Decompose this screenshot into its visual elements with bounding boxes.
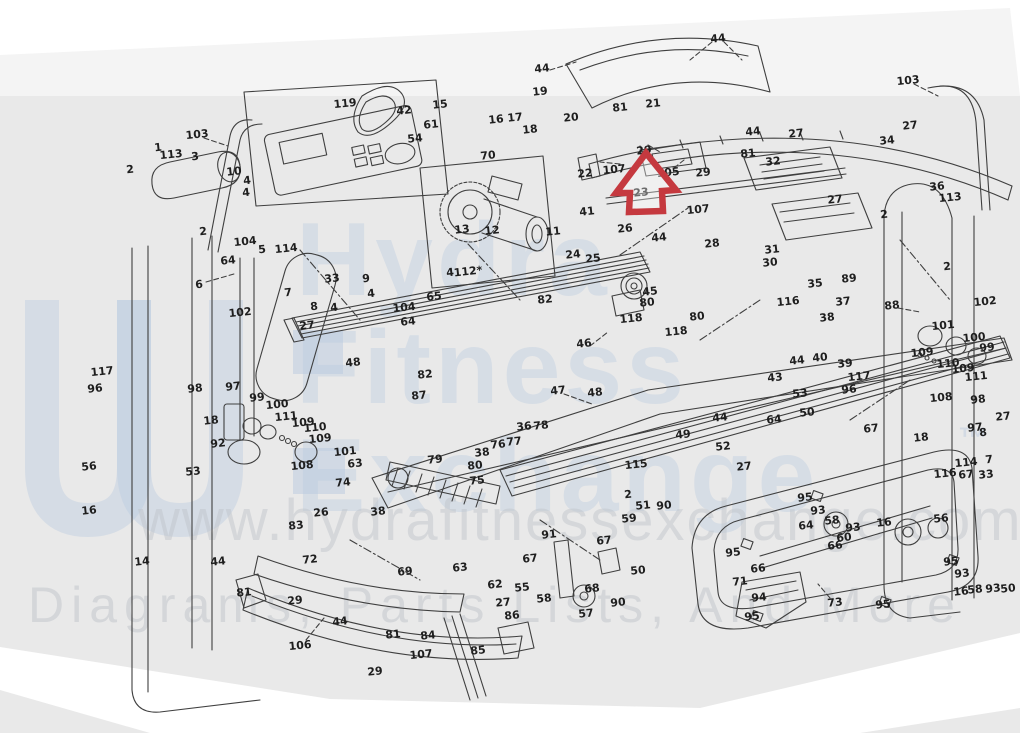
- part-label-61: 61: [423, 117, 440, 132]
- part-label-95: 95: [797, 490, 814, 505]
- part-label-7: 7: [985, 453, 994, 467]
- part-label-9: 9: [362, 272, 371, 286]
- part-label-56: 56: [933, 511, 950, 526]
- part-label-64: 64: [220, 253, 237, 268]
- part-label-64: 64: [400, 314, 417, 329]
- part-label-29: 29: [695, 165, 712, 180]
- part-label-64: 64: [798, 518, 815, 533]
- part-label-70: 70: [480, 148, 497, 163]
- part-label-30: 30: [762, 255, 779, 270]
- part-label-28: 28: [704, 236, 721, 251]
- part-label-80: 80: [689, 309, 706, 324]
- part-label-63: 63: [347, 456, 364, 471]
- part-label-59: 59: [621, 511, 638, 526]
- part-label-18: 18: [522, 122, 539, 137]
- part-label-25: 25: [585, 251, 602, 266]
- paper-sliver-left: [0, 690, 150, 733]
- part-label-8: 8: [979, 426, 988, 440]
- part-label-54: 54: [407, 131, 424, 146]
- part-label-118: 118: [619, 311, 643, 326]
- part-label-27: 27: [902, 118, 919, 133]
- part-label-107: 107: [602, 162, 626, 177]
- part-label-67: 67: [863, 421, 880, 436]
- part-label-48: 48: [587, 385, 604, 400]
- part-label-68: 68: [584, 581, 601, 596]
- part-label-67: 67: [596, 533, 613, 548]
- part-label-20: 20: [563, 110, 580, 125]
- part-label-85: 85: [470, 643, 487, 658]
- part-label-80: 80: [639, 295, 656, 310]
- part-label-101: 101: [931, 318, 955, 333]
- part-label-2: 2: [624, 488, 633, 502]
- part-label-58: 58: [967, 582, 984, 597]
- paper-sliver-right: [860, 708, 1020, 733]
- part-label-99: 99: [249, 390, 266, 405]
- part-label-41: 41: [579, 204, 596, 219]
- part-label-81: 81: [236, 585, 253, 600]
- part-label-52: 52: [715, 439, 732, 454]
- part-label-44: 44: [332, 614, 349, 629]
- part-label-2: 2: [943, 260, 952, 274]
- part-label-98: 98: [970, 392, 987, 407]
- part-label-2: 2: [880, 208, 889, 222]
- part-label-44: 44: [710, 31, 727, 46]
- part-label-44: 44: [712, 410, 729, 425]
- part-label-33: 33: [324, 271, 341, 286]
- part-label-2: 2: [199, 225, 208, 239]
- part-label-97: 97: [225, 379, 242, 394]
- part-label-84: 84: [420, 628, 437, 643]
- part-label-42: 42: [396, 103, 413, 118]
- part-label-81: 81: [740, 146, 757, 161]
- part-label-56: 56: [81, 459, 98, 474]
- part-label-27: 27: [827, 192, 844, 207]
- part-label-75: 75: [469, 473, 486, 488]
- part-label-15: 15: [432, 97, 449, 112]
- part-label-31: 31: [764, 242, 781, 257]
- part-label-27: 27: [299, 318, 316, 333]
- part-label-76: 76: [490, 437, 507, 452]
- part-label-8: 8: [310, 300, 319, 314]
- part-label-16: 16: [81, 503, 98, 518]
- part-label-109: 109: [308, 431, 332, 446]
- part-label-50: 50: [630, 563, 647, 578]
- part-label-99: 99: [979, 340, 996, 355]
- part-label-44: 44: [789, 353, 806, 368]
- part-label-18: 18: [203, 413, 220, 428]
- part-label-44: 44: [534, 61, 551, 76]
- part-label-18: 18: [913, 430, 930, 445]
- part-label-38: 38: [370, 504, 387, 519]
- part-label-88: 88: [884, 298, 901, 313]
- part-label-27: 27: [995, 409, 1012, 424]
- part-label-57: 57: [578, 606, 595, 621]
- part-label-67: 67: [522, 551, 539, 566]
- part-label-81: 81: [612, 100, 629, 115]
- part-label-53: 53: [185, 464, 202, 479]
- part-label-38: 38: [474, 445, 491, 460]
- part-label-5: 5: [258, 243, 267, 257]
- part-label-44: 44: [745, 124, 762, 139]
- part-label-74: 74: [335, 475, 352, 490]
- part-label-13: 13: [454, 222, 471, 237]
- part-label-65: 65: [426, 289, 443, 304]
- part-label-40: 40: [812, 350, 829, 365]
- part-label-77: 77: [506, 434, 523, 449]
- part-label-16: 16: [488, 112, 505, 127]
- part-label-109: 109: [910, 345, 934, 360]
- part-label-103: 103: [185, 127, 209, 142]
- part-label-21: 21: [645, 96, 662, 111]
- part-label-80: 80: [467, 458, 484, 473]
- part-label-107: 107: [686, 202, 710, 217]
- part-label-104: 104: [392, 300, 417, 315]
- part-label-95: 95: [725, 545, 742, 560]
- part-label-111: 111: [964, 369, 988, 384]
- part-label-116: 116: [776, 294, 801, 309]
- part-label-10: 10: [226, 164, 243, 179]
- part-label-82: 82: [537, 292, 554, 307]
- part-label-91: 91: [541, 527, 558, 542]
- part-label-16: 16: [876, 515, 893, 530]
- part-label-34: 34: [879, 133, 896, 148]
- part-label-33: 33: [978, 467, 995, 482]
- part-label-27: 27: [788, 126, 805, 141]
- part-label-24: 24: [565, 247, 582, 262]
- part-label-96: 96: [87, 381, 104, 396]
- part-label-32: 32: [765, 154, 782, 169]
- part-label-43: 43: [767, 370, 784, 385]
- part-label-50: 50: [799, 405, 816, 420]
- part-label-81: 81: [385, 627, 402, 642]
- part-label-44: 44: [651, 230, 668, 245]
- part-label-3: 3: [191, 150, 200, 164]
- part-label-66: 66: [827, 538, 844, 553]
- part-label-89: 89: [841, 271, 858, 286]
- part-label-35: 35: [807, 276, 824, 291]
- part-label-82: 82: [417, 367, 434, 382]
- part-label-64: 64: [766, 412, 783, 427]
- part-label-53: 53: [792, 386, 809, 401]
- paper-top-wedge: [0, 8, 1020, 96]
- part-label-39: 39: [837, 356, 854, 371]
- part-label-92: 92: [210, 436, 227, 451]
- part-label-11: 11: [545, 224, 562, 239]
- part-label-19: 19: [532, 84, 549, 99]
- scanned-parts-diagram-page: Hydra Fitness Exchange ™ www.hydrafitnes…: [0, 0, 1020, 733]
- part-label-58: 58: [536, 591, 553, 606]
- part-label-26: 26: [617, 221, 634, 236]
- part-label-119: 119: [333, 96, 357, 111]
- part-label-47: 47: [550, 383, 567, 398]
- part-label-73: 73: [827, 595, 844, 610]
- part-label-102: 102: [973, 294, 997, 309]
- part-label-58: 58: [824, 513, 841, 528]
- part-label-103: 103: [896, 73, 920, 88]
- part-label-71: 71: [732, 574, 749, 589]
- part-label-95: 95: [875, 597, 892, 612]
- part-label-87: 87: [411, 388, 428, 403]
- part-label-96: 96: [841, 382, 858, 397]
- part-label-2: 2: [126, 163, 135, 177]
- part-label-72: 72: [302, 552, 319, 567]
- part-label-63: 63: [452, 560, 469, 575]
- part-label-50: 50: [1000, 581, 1017, 596]
- part-label-79: 79: [427, 452, 444, 467]
- part-label-116: 116: [933, 466, 958, 481]
- part-label-49: 49: [675, 427, 692, 442]
- part-label-106: 106: [288, 638, 313, 653]
- part-label-86: 86: [504, 608, 521, 623]
- part-label-27: 27: [495, 595, 512, 610]
- part-label-7: 7: [284, 286, 293, 300]
- part-label-36: 36: [516, 419, 533, 434]
- part-label-113: 113: [159, 147, 183, 162]
- part-label-78: 78: [533, 418, 550, 433]
- part-label-48: 48: [345, 355, 362, 370]
- part-label-14: 14: [134, 554, 151, 569]
- part-label-62: 62: [487, 577, 504, 592]
- part-label-26: 26: [313, 505, 330, 520]
- part-label-66: 66: [750, 561, 767, 576]
- part-label-93: 93: [954, 566, 971, 581]
- part-label-114: 114: [274, 241, 299, 256]
- part-label-95: 95: [744, 609, 761, 624]
- part-label-107: 107: [409, 647, 433, 662]
- part-label-108: 108: [290, 458, 314, 473]
- part-label-98: 98: [187, 381, 204, 396]
- part-label-17: 17: [507, 110, 524, 125]
- part-label-29: 29: [287, 593, 304, 608]
- part-label-27: 27: [736, 459, 753, 474]
- part-label-102: 102: [228, 305, 252, 320]
- treadmill-exploded-diagram: Hydra Fitness Exchange ™ www.hydrafitnes…: [0, 0, 1020, 733]
- part-label-55: 55: [514, 580, 531, 595]
- part-label-113: 113: [938, 190, 962, 205]
- part-label-67: 67: [958, 467, 975, 482]
- part-label-115: 115: [624, 457, 648, 472]
- part-label-29: 29: [367, 664, 384, 679]
- part-label-22: 22: [577, 166, 594, 181]
- part-label-90: 90: [610, 595, 627, 610]
- part-label-90: 90: [656, 498, 673, 513]
- part-label-83: 83: [288, 518, 305, 533]
- part-label-38: 38: [819, 310, 836, 325]
- part-label-12: 12: [484, 223, 501, 238]
- part-label-94: 94: [751, 590, 768, 605]
- part-label-69: 69: [397, 564, 414, 579]
- part-label-37: 37: [835, 294, 852, 309]
- part-label-46: 46: [576, 336, 593, 351]
- part-label-117: 117: [90, 364, 114, 379]
- part-label-104: 104: [233, 234, 258, 249]
- part-label-118: 118: [664, 324, 688, 339]
- part-label-44: 44: [210, 554, 227, 569]
- part-label-108: 108: [929, 390, 953, 405]
- part-label-51: 51: [635, 498, 652, 513]
